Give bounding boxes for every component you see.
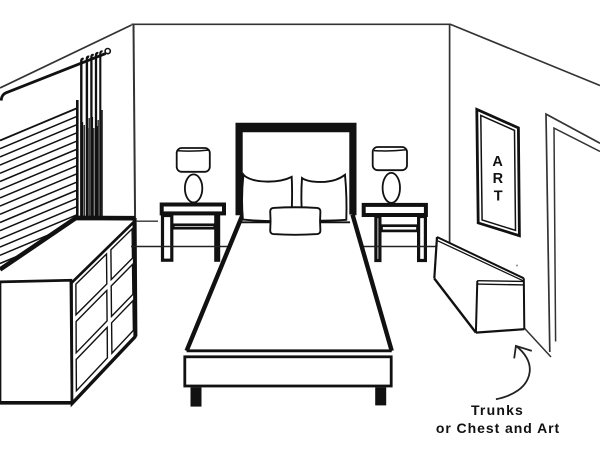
svg-text:or Chest and Art: or Chest and Art (436, 420, 560, 436)
svg-text:R: R (493, 171, 504, 187)
svg-text:Trunks: Trunks (471, 402, 524, 418)
svg-text:A: A (492, 154, 503, 170)
svg-text:T: T (494, 188, 503, 204)
